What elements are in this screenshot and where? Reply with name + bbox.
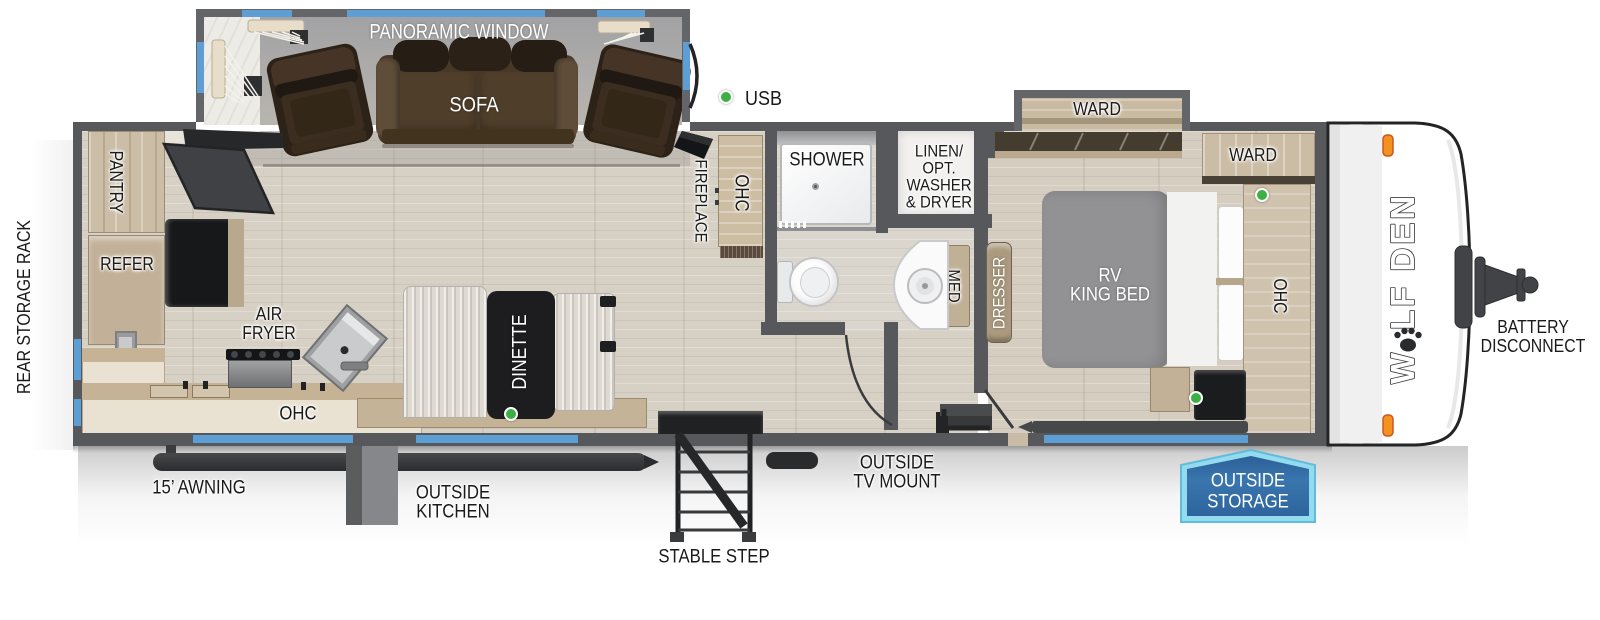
svg-text:W: W (1384, 350, 1421, 384)
svg-text:LF DEN: LF DEN (1384, 193, 1421, 330)
